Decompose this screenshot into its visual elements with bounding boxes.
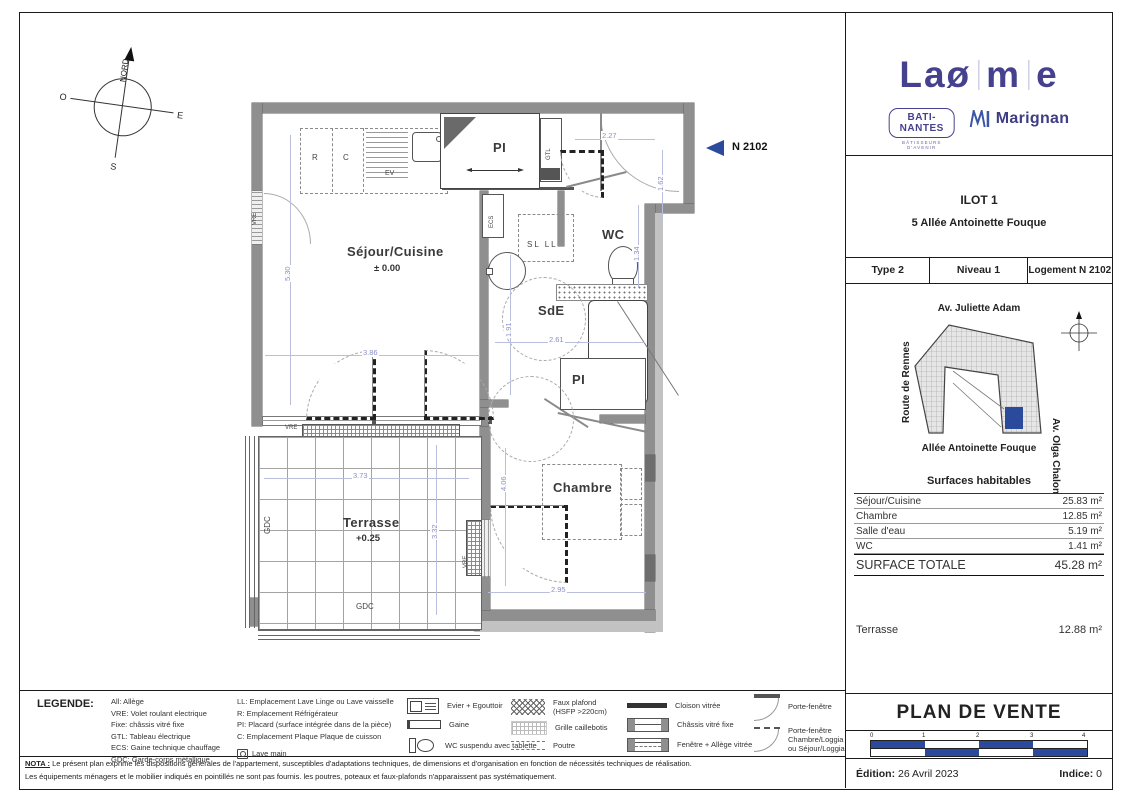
sde-label: SdE bbox=[538, 303, 564, 318]
scale-bar-row bbox=[871, 741, 1087, 748]
evier-icon bbox=[407, 698, 439, 714]
dim-chambre-width: 2.95 bbox=[550, 585, 567, 594]
terrasse-level: +0.25 bbox=[356, 533, 380, 544]
legend-symbol-label: Poutre bbox=[553, 740, 575, 752]
surface-value: 25.83 m² bbox=[1063, 496, 1102, 507]
legend-symbol-row: Grille caillebotis bbox=[511, 718, 608, 737]
washer-slot bbox=[518, 214, 574, 262]
wall-segment bbox=[480, 610, 655, 621]
scale-bar-row bbox=[871, 748, 1087, 756]
gtl-label: GTL bbox=[546, 148, 552, 160]
dim-entry-height: 1.62 bbox=[656, 175, 665, 192]
wc-door-arc bbox=[560, 150, 604, 198]
terrasse-surface-value: 12.88 m² bbox=[1059, 624, 1102, 636]
wall-segment bbox=[252, 103, 262, 191]
niveau-cell: Niveau 1 bbox=[930, 257, 1027, 283]
dim-line bbox=[495, 342, 645, 343]
surface-label: WC bbox=[856, 541, 873, 552]
doc-title: PLAN DE VENTE bbox=[896, 702, 1061, 724]
type-row: Type 2 Niveau 1 Logement N 2102 bbox=[846, 257, 1112, 284]
edition-label: Édition: bbox=[856, 768, 895, 780]
surface-value: 1.41 m² bbox=[1068, 541, 1102, 552]
unit-marker-arrow-icon bbox=[706, 140, 724, 156]
dim-line bbox=[505, 448, 506, 586]
fridge-label: R bbox=[312, 153, 318, 162]
terrasse-door-leaf-left bbox=[372, 350, 373, 416]
closet-door-wedge bbox=[444, 117, 476, 149]
porte-fenetre-icon bbox=[754, 694, 780, 720]
logo-letter: ø bbox=[947, 54, 972, 96]
wall-exterior-band bbox=[655, 213, 663, 632]
pi-mid-label: PI bbox=[572, 372, 585, 387]
dim-chambre-height: 4.06 bbox=[499, 475, 508, 492]
faux-plafond-icon bbox=[511, 699, 545, 715]
site-map-drawing bbox=[901, 311, 1101, 461]
scale-bar bbox=[870, 740, 1088, 757]
sl-ll-label: SL LL bbox=[527, 240, 558, 249]
legend-item: C: Emplacement Plaque Plaque de cuisson bbox=[237, 731, 394, 743]
vre-left-label: VRE bbox=[252, 213, 258, 225]
legend-symbol-label: Porte-fenêtre bbox=[788, 701, 832, 713]
type-cell: Type 2 bbox=[846, 257, 930, 283]
wc-label: WC bbox=[602, 227, 624, 242]
washbasin-tap bbox=[486, 268, 493, 275]
legend-symbols-col4: Porte-fenêtre Porte-fenêtreChambre/Loggi… bbox=[754, 692, 845, 756]
scale-tick: 0 bbox=[870, 733, 873, 739]
logo-separator bbox=[1028, 60, 1029, 90]
surface-row: WC 1.41 m² bbox=[854, 539, 1104, 554]
unit-leader-line bbox=[953, 383, 1001, 427]
scale-tick: 1 bbox=[922, 733, 925, 739]
legend-symbol-label: Cloison vitrée bbox=[675, 700, 720, 712]
floor-plan: VRE VRE GDC GDC VRE R C EV PI GTL ECS SL… bbox=[0, 0, 845, 690]
logo-separator bbox=[978, 60, 979, 90]
scale-tick: 4 bbox=[1082, 733, 1085, 739]
site-map: Av. Juliette Adam Route de Rennes Av. Ol… bbox=[846, 283, 1112, 471]
legend-symbol-row: Châssis vitré fixe bbox=[627, 715, 752, 735]
logo-letter: a bbox=[924, 54, 947, 96]
wall-exterior-band bbox=[474, 621, 662, 632]
terrasse-label: Terrasse bbox=[343, 515, 399, 530]
scale-tick-labels: 0 1 2 3 4 bbox=[870, 733, 1086, 739]
ilot-block: ILOT 1 5 Allée Antoinette Fouque bbox=[846, 155, 1112, 258]
indice-value: 0 bbox=[1096, 768, 1102, 780]
indice-label: Indice: bbox=[1059, 768, 1093, 780]
dim-entry-width: 2.27 bbox=[601, 131, 618, 140]
legend-item: Fixe: châssis vitré fixe bbox=[111, 719, 220, 731]
sink-label: EV bbox=[385, 170, 394, 177]
cooktop-label: C bbox=[343, 153, 349, 162]
legend-item: LL: Emplacement Lave Linge ou Lave vaiss… bbox=[237, 696, 394, 708]
dim-wc-height: 1.34 bbox=[632, 245, 641, 262]
legend-symbol-row: Fenêtre + Allège vitrée bbox=[627, 735, 752, 755]
legend-symbol-label: Porte-fenêtreChambre/Loggiaou Séjour/Log… bbox=[788, 726, 845, 753]
sliding-arrow-right bbox=[518, 168, 524, 172]
terrasse-door-arc-left bbox=[306, 350, 376, 420]
legend-item: All: Allège bbox=[111, 696, 220, 708]
ecs-label: ECS bbox=[489, 216, 495, 228]
vre-top-label: VRE bbox=[285, 425, 297, 431]
wall-segment bbox=[252, 103, 694, 113]
ilot-title: ILOT 1 bbox=[846, 193, 1112, 207]
legend-symbols-col3: Cloison vitrée Châssis vitré fixe Fenêtr… bbox=[627, 696, 752, 755]
bed-outline bbox=[542, 464, 622, 540]
surface-label: Salle d'eau bbox=[856, 526, 905, 537]
dim-line bbox=[488, 592, 646, 593]
legend-symbol-label: Gaine bbox=[449, 719, 469, 731]
gdc-bottom-label: GDC bbox=[356, 602, 374, 611]
vre-right-label: VRE bbox=[463, 556, 469, 568]
poutre-icon bbox=[511, 741, 545, 750]
window-allege-segment bbox=[645, 555, 655, 581]
surface-row: Chambre 12.85 m² bbox=[854, 509, 1104, 524]
scale-segment bbox=[871, 749, 925, 756]
window-frame-midline bbox=[262, 420, 480, 421]
bati-nantes-pill: BATI-NANTES bbox=[889, 108, 955, 138]
scale-segment bbox=[1033, 741, 1087, 748]
surfaces-table: Surfaces habitables Séjour/Cuisine 25.83… bbox=[846, 471, 1112, 693]
surface-total-label: SURFACE TOTALE bbox=[856, 558, 966, 572]
edition-row: Édition: 26 Avril 2023 Indice: 0 bbox=[846, 758, 1112, 788]
dim-sejour-height: 5.30 bbox=[283, 265, 292, 282]
legend-item: R: Emplacement Réfrigérateur bbox=[237, 708, 394, 720]
scale-segment bbox=[979, 749, 1033, 756]
terrasse-door-leaf-right bbox=[424, 350, 425, 416]
bati-nantes-subtitle: BÂTISSEURS D'AVENIR bbox=[889, 140, 955, 150]
pi-top-label: PI bbox=[493, 140, 506, 155]
logement-cell: Logement N 2102 bbox=[1028, 257, 1112, 283]
surface-value: 12.85 m² bbox=[1063, 511, 1102, 522]
nota-text2: Les équipements ménagers et le mobilier … bbox=[25, 772, 556, 781]
sejour-label: Séjour/Cuisine bbox=[347, 244, 444, 259]
dim-terrasse-width: 3.73 bbox=[352, 471, 369, 480]
unit-marker-label: N 2102 bbox=[732, 141, 767, 153]
scale-segment bbox=[871, 741, 925, 748]
entry-door-arc bbox=[600, 113, 679, 192]
turning-circle-sde bbox=[502, 277, 586, 361]
marignan-wordmark: Marignan bbox=[996, 110, 1070, 128]
legend-symbol-row: Poutre bbox=[511, 737, 608, 754]
bed-pillow bbox=[620, 504, 642, 536]
scale-segment bbox=[925, 749, 979, 756]
legend-title: LEGENDE: bbox=[37, 698, 94, 710]
logo-letter: e bbox=[1036, 54, 1059, 96]
legend-symbol-label: Faux plafond(HSFP >220cm) bbox=[553, 698, 607, 716]
legend-symbol-row: Porte-fenêtre bbox=[754, 692, 845, 722]
legend-symbol-row: Porte-fenêtreChambre/Loggiaou Séjour/Log… bbox=[754, 722, 845, 756]
legend-item: ECS: Gaine technique chauffage bbox=[111, 742, 220, 754]
legend-symbol-label: Grille caillebotis bbox=[555, 722, 608, 734]
gdc-rail-bottom bbox=[258, 630, 480, 640]
map-compass-icon bbox=[1061, 311, 1097, 351]
logo-letter: L bbox=[899, 54, 924, 96]
nota-label: NOTA : bbox=[25, 759, 50, 768]
fenetre-allege-icon bbox=[627, 738, 669, 752]
scale-tick: 2 bbox=[976, 733, 979, 739]
legend-item: VRE: Volet roulant electrique bbox=[111, 708, 220, 720]
grille-caillebotis-icon bbox=[511, 721, 547, 735]
legend-symbol-row: Cloison vitrée bbox=[627, 696, 752, 715]
wall-segment bbox=[684, 103, 694, 213]
legend-symbol-label: Châssis vitré fixe bbox=[677, 719, 734, 731]
legend-symbol-label: Evier + Egouttoir bbox=[447, 700, 503, 712]
partner-logos: BATI-NANTES BÂTISSEURS D'AVENIR Marignan bbox=[889, 108, 1070, 150]
window-allege-segment bbox=[645, 455, 655, 481]
dim-sde-width: 2.61 bbox=[548, 335, 565, 344]
wall-segment bbox=[252, 245, 262, 426]
kitchen-divider bbox=[363, 128, 365, 192]
bed-pillow bbox=[620, 468, 642, 500]
scale-segment bbox=[979, 741, 1033, 748]
nota-text1: Le présent plan exprime les dispositions… bbox=[52, 759, 692, 768]
edition-value: 26 Avril 2023 bbox=[898, 768, 959, 780]
highlighted-unit bbox=[1005, 407, 1023, 429]
nota-line2: Les équipements ménagers et le mobilier … bbox=[25, 772, 556, 781]
scale-bar-block: 0 1 2 3 4 bbox=[846, 730, 1112, 759]
surface-total-value: 45.28 m² bbox=[1055, 558, 1102, 572]
gdc-left-label: GDC bbox=[263, 516, 272, 534]
titleblock: L a ø m e BATI-NANTES BÂTISSEURS D'AVENI… bbox=[846, 12, 1112, 788]
surface-row: Salle d'eau 5.19 m² bbox=[854, 524, 1104, 539]
logo-block: L a ø m e BATI-NANTES BÂTISSEURS D'AVENI… bbox=[846, 12, 1112, 156]
legend-symbol-row: Faux plafond(HSFP >220cm) bbox=[511, 696, 608, 718]
surface-value: 5.19 m² bbox=[1068, 526, 1102, 537]
sejour-level: ± 0.00 bbox=[374, 263, 400, 274]
doc-title-block: PLAN DE VENTE bbox=[846, 693, 1112, 731]
legend-item: PI: Placard (surface intégrée dans de la… bbox=[237, 719, 394, 731]
gdc-rail-left bbox=[245, 436, 255, 628]
marignan-logo: Marignan bbox=[969, 110, 1070, 128]
terrasse-surface-label: Terrasse bbox=[856, 624, 898, 636]
dim-terrasse-height: 3.32 bbox=[430, 523, 439, 540]
sliding-arrow-left bbox=[466, 168, 472, 172]
scale-segment bbox=[1033, 749, 1087, 756]
logo-letter: m bbox=[986, 54, 1021, 96]
surface-total-row: SURFACE TOTALE 45.28 m² bbox=[854, 554, 1104, 576]
kitchen-divider bbox=[332, 128, 334, 192]
gtl-block bbox=[540, 168, 560, 180]
surfaces-title: Surfaces habitables bbox=[854, 471, 1104, 494]
turning-circle-hall bbox=[488, 376, 574, 462]
plan-de-vente-sheet: { "compass": {"north": "NORD", "south": … bbox=[0, 0, 1131, 800]
terrasse-surface-row: Terrasse 12.88 m² bbox=[854, 622, 1104, 637]
surface-label: Séjour/Cuisine bbox=[856, 496, 921, 507]
legend-symbol-label: Fenêtre + Allège vitrée bbox=[677, 739, 752, 751]
edition-field: Édition: 26 Avril 2023 bbox=[856, 768, 959, 780]
surface-row: Séjour/Cuisine 25.83 m² bbox=[854, 494, 1104, 509]
dim-sejour-width: 3.86 bbox=[362, 348, 379, 357]
legend-symbols-col2: Faux plafond(HSFP >220cm) Grille cailleb… bbox=[511, 696, 608, 754]
chambre-label: Chambre bbox=[553, 480, 612, 495]
indice-field: Indice: 0 bbox=[1059, 768, 1102, 780]
legend-abbreviations-col2: LL: Emplacement Lave Linge ou Lave vaiss… bbox=[237, 696, 394, 760]
window-door-arc bbox=[264, 193, 311, 244]
laome-logo: L a ø m e bbox=[899, 54, 1058, 96]
nota-block: NOTA : Le présent plan exprime les dispo… bbox=[19, 756, 845, 788]
legend: LEGENDE: All: Allège VRE: Volet roulant … bbox=[19, 690, 845, 756]
legend-item: GTL: Tableau électrique bbox=[111, 731, 220, 743]
dim-sde-height: 1.91 bbox=[504, 321, 513, 338]
porte-fenetre-loggia-icon bbox=[754, 725, 780, 753]
cloison-vitree-icon bbox=[627, 703, 667, 708]
address: 5 Allée Antoinette Fouque bbox=[846, 217, 1112, 229]
chassis-vitre-fixe-icon bbox=[627, 718, 669, 732]
marignan-m-icon bbox=[969, 110, 991, 128]
surface-label: Chambre bbox=[856, 511, 897, 522]
scale-segment bbox=[925, 741, 979, 748]
bati-nantes-logo: BATI-NANTES BÂTISSEURS D'AVENIR bbox=[889, 108, 955, 150]
legend-abbreviations-col1: All: Allège VRE: Volet roulant electriqu… bbox=[111, 696, 220, 765]
nota-line1: NOTA : Le présent plan exprime les dispo… bbox=[25, 759, 692, 768]
scale-tick: 3 bbox=[1030, 733, 1033, 739]
gaine-icon bbox=[407, 720, 441, 729]
sliding-arrow-line bbox=[468, 170, 520, 171]
wc-suspendu-icon bbox=[407, 738, 437, 752]
